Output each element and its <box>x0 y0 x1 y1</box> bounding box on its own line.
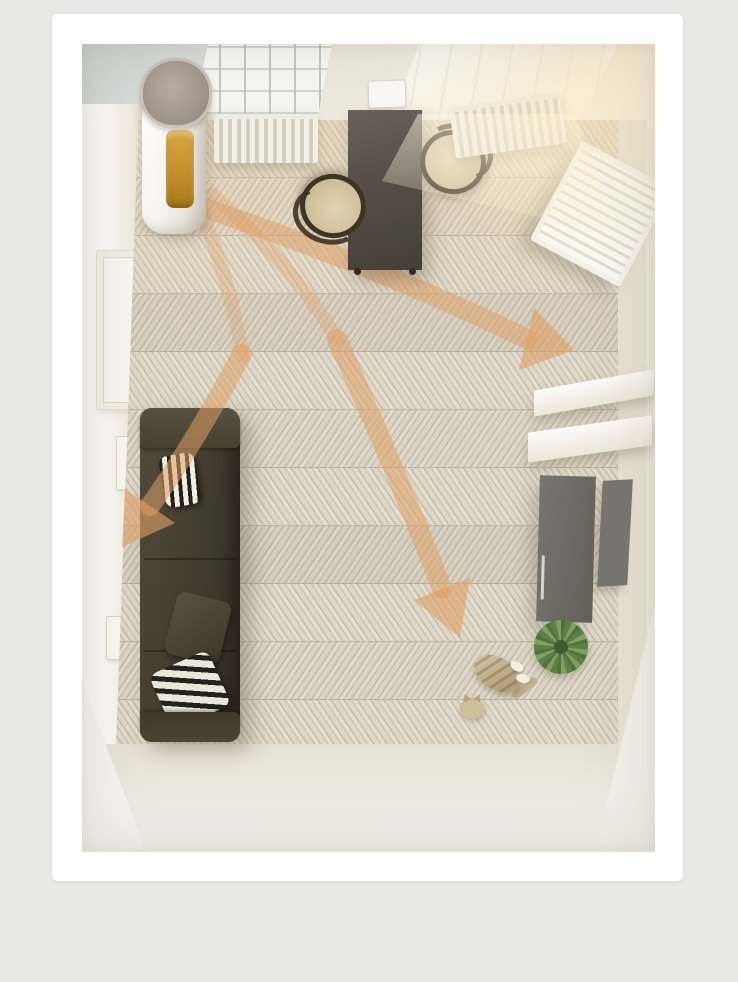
purifier-top-lid <box>140 58 212 128</box>
arrowhead-right <box>519 308 574 370</box>
room-photo <box>82 44 655 852</box>
product-image-card <box>52 14 683 881</box>
airflow-arrow-downright <box>337 339 442 589</box>
cat-head <box>460 698 484 719</box>
cabinet-handle <box>541 555 545 599</box>
radiator-left <box>214 114 318 163</box>
air-purifier <box>132 58 218 250</box>
wall-panel <box>597 479 633 586</box>
airflow-arrow-downleft <box>150 354 242 506</box>
purifier-filter-window <box>166 130 194 208</box>
gray-cabinet <box>536 475 596 622</box>
cat <box>454 652 540 736</box>
potted-plant <box>534 620 588 674</box>
page-background <box>0 0 738 982</box>
